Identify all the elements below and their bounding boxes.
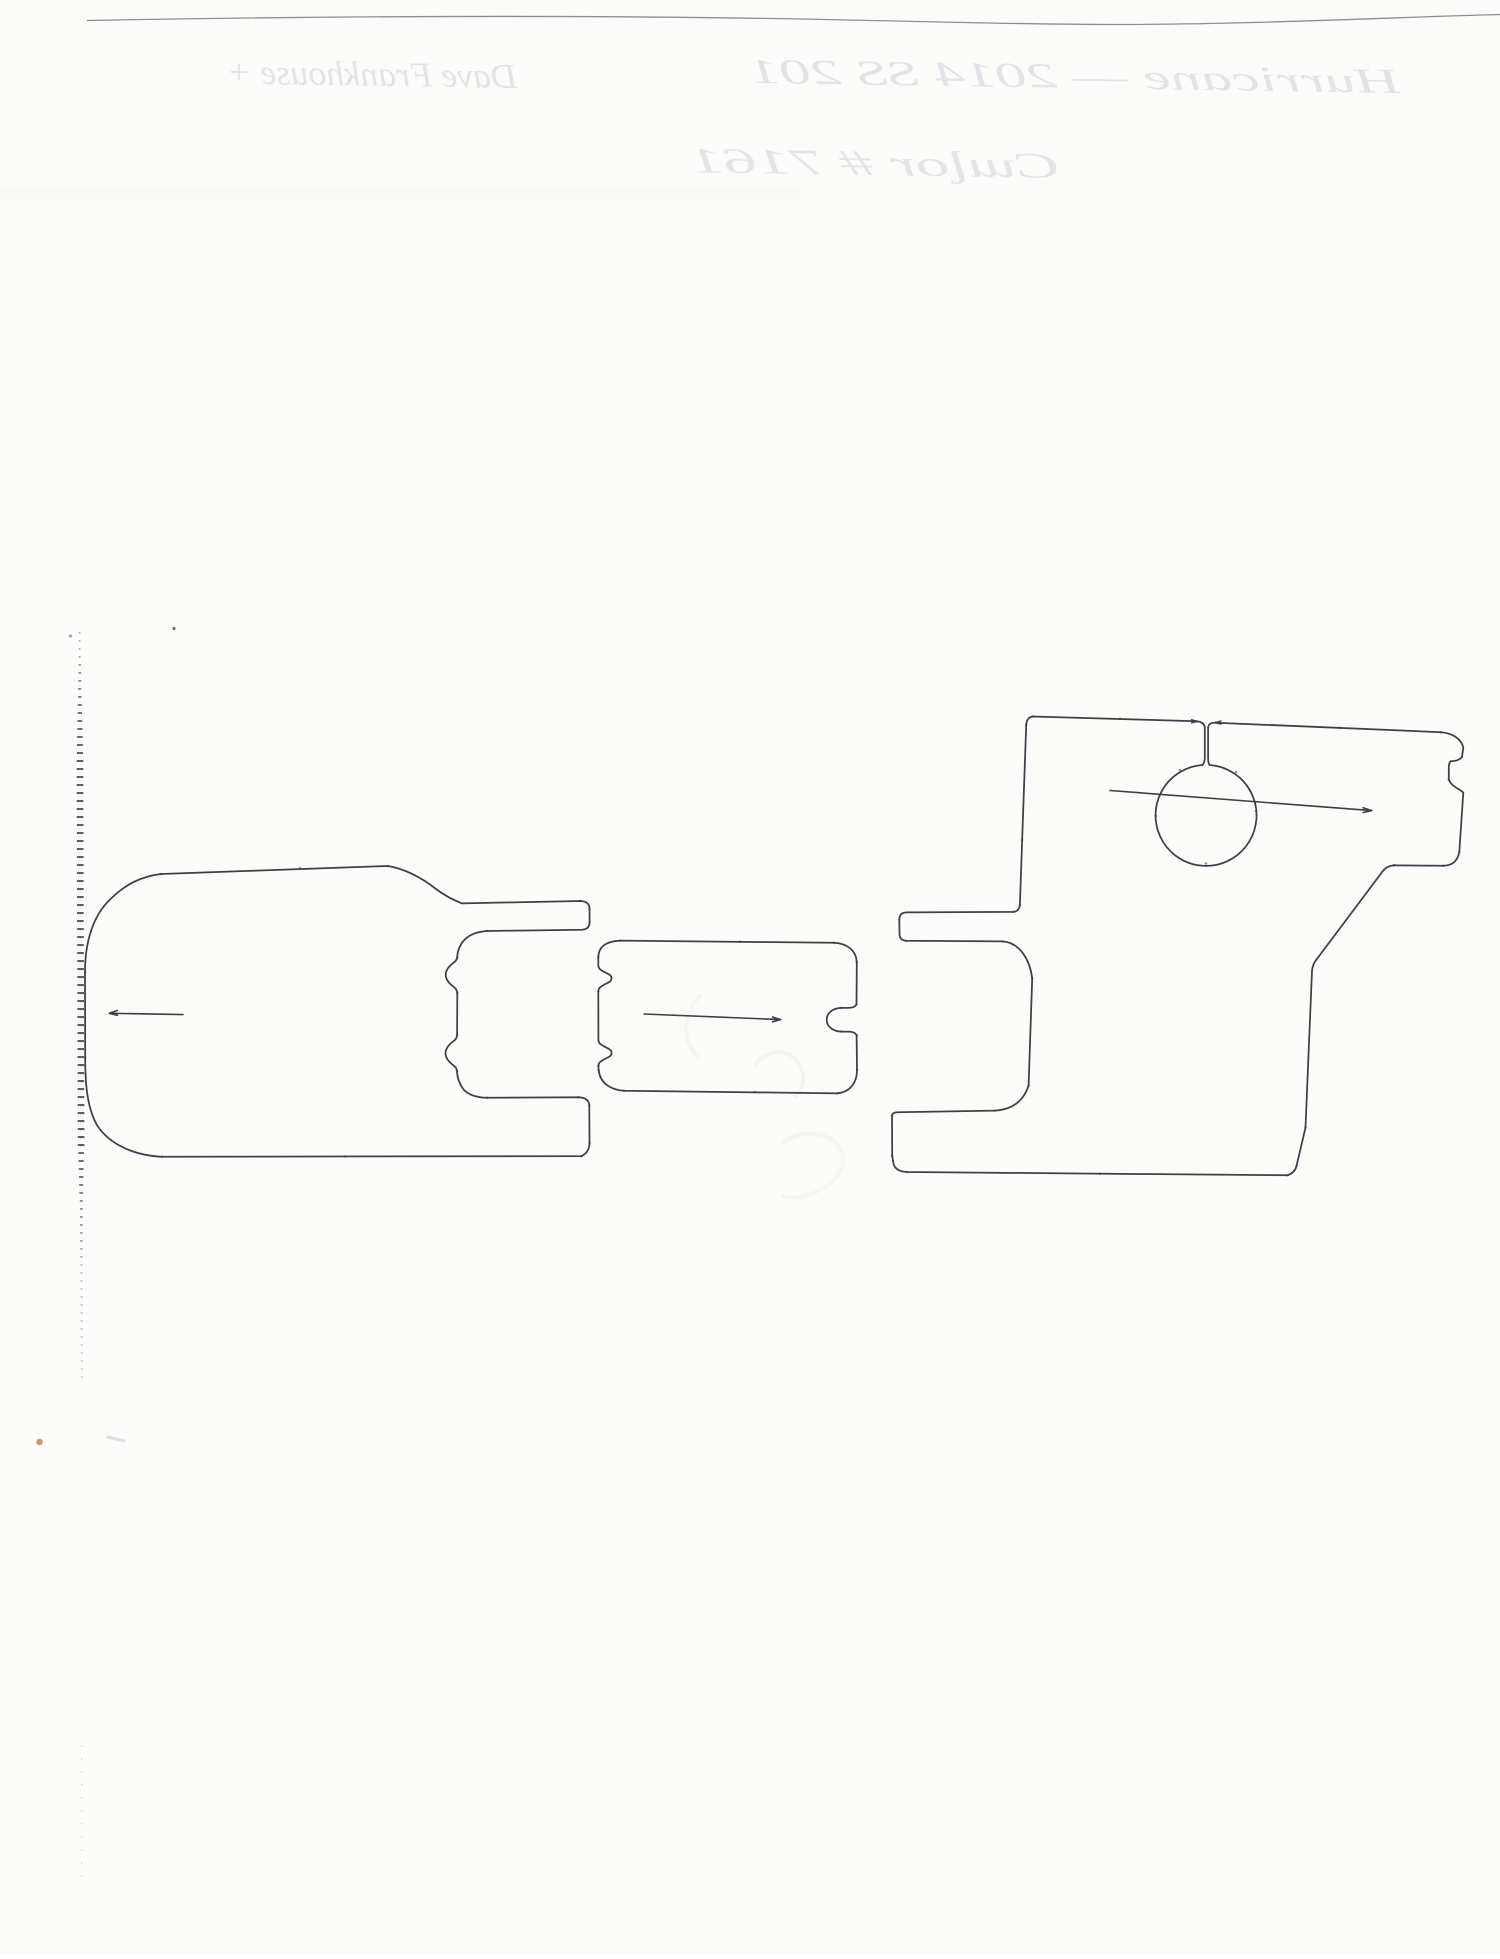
svg-text:Cɯɭor # 7161: Cɯɭor # 7161 xyxy=(690,140,1061,186)
svg-text:Dave Frankhouse +: Dave Frankhouse + xyxy=(227,52,519,96)
